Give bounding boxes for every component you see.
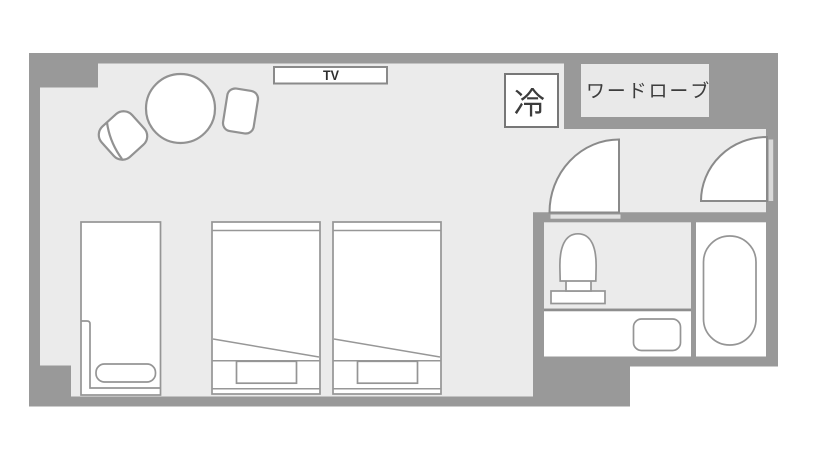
svg-text:TV: TV [323,68,339,83]
